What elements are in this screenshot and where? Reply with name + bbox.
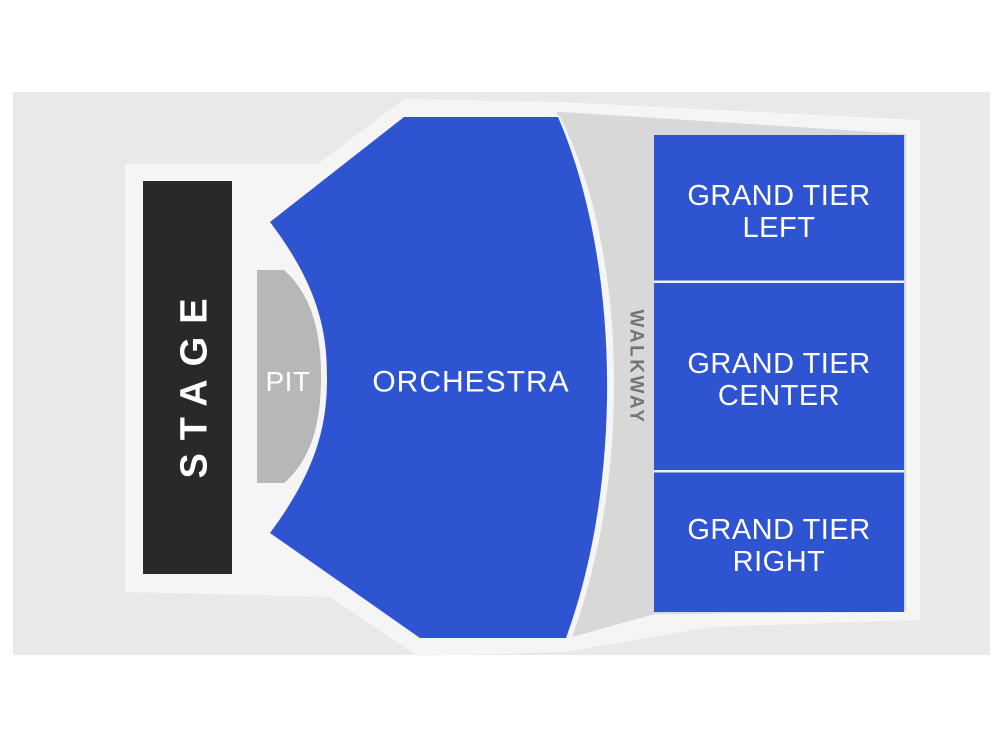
seatmap-viewport: STAGE PIT ORCHESTRA WALKWAY GRAND TIER L… <box>0 0 1000 750</box>
grand-tier-left-section[interactable] <box>654 135 904 281</box>
stage-block <box>143 181 232 574</box>
grand-tier-right-section[interactable] <box>654 473 904 613</box>
grand-tier-separator-top <box>654 281 904 284</box>
grand-tier-center-section[interactable] <box>654 283 904 470</box>
grand-tier-separator-bottom <box>654 470 904 473</box>
seatmap-canvas: STAGE PIT ORCHESTRA WALKWAY GRAND TIER L… <box>0 0 1000 750</box>
